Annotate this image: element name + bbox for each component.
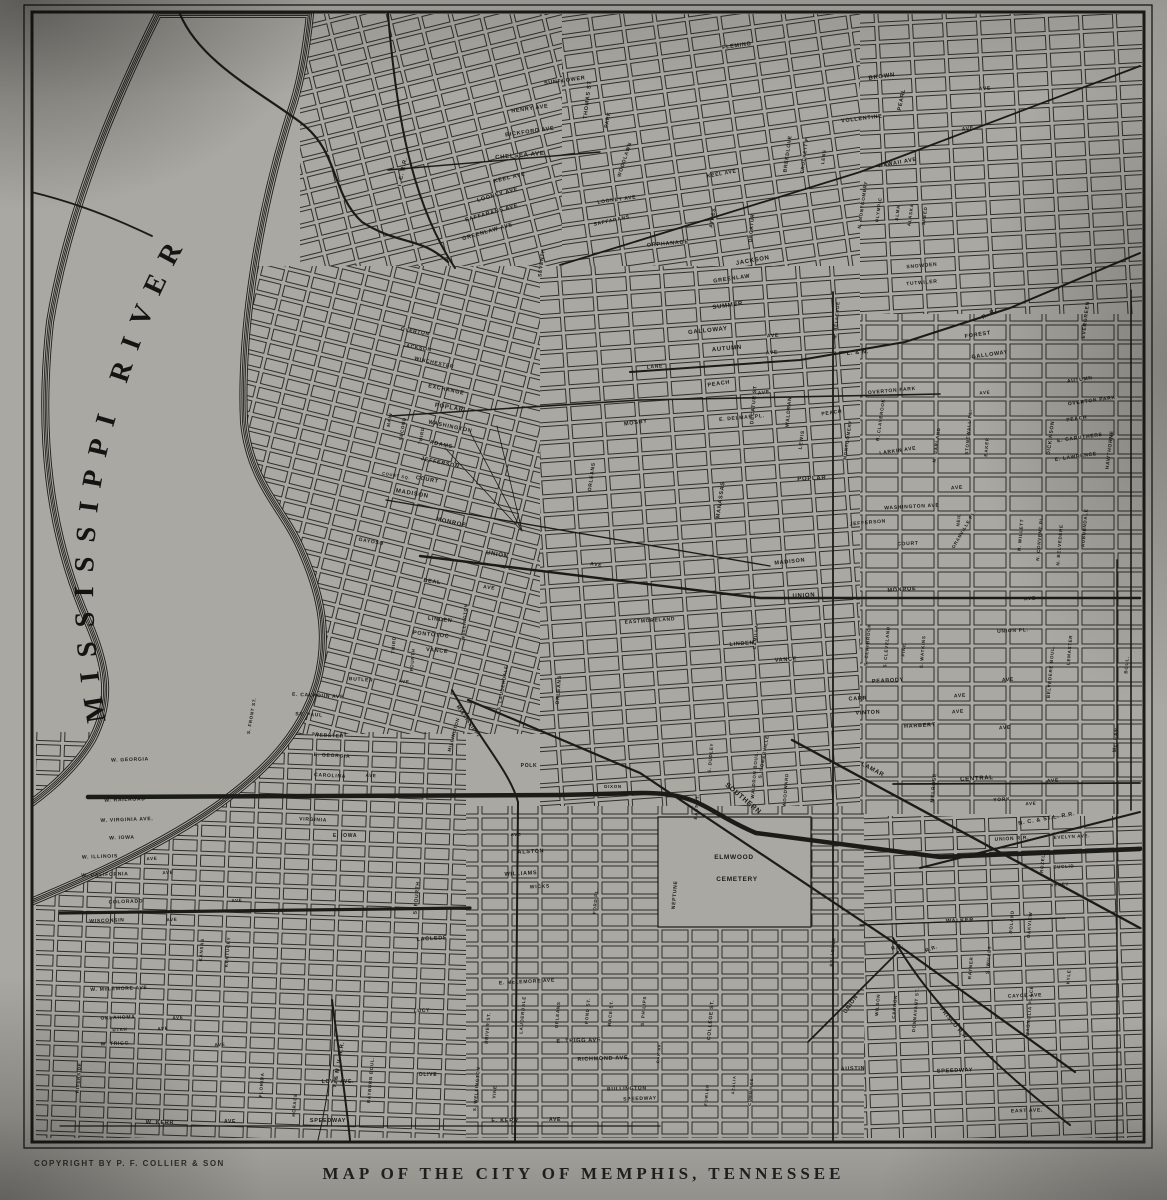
svg-text:LUCY: LUCY <box>414 1008 431 1015</box>
svg-text:AVE: AVE <box>1025 801 1036 807</box>
svg-text:AVE: AVE <box>952 709 964 716</box>
svg-text:AVE: AVE <box>766 349 778 356</box>
svg-text:AVE: AVE <box>166 917 177 922</box>
svg-text:AVE: AVE <box>1024 596 1036 603</box>
svg-text:VESEY: VESEY <box>1051 882 1070 888</box>
svg-text:AVE: AVE <box>398 679 409 685</box>
svg-text:AUSTIN: AUSTIN <box>841 1066 866 1073</box>
svg-text:COLORADO: COLORADO <box>108 898 143 905</box>
svg-text:UTAH: UTAH <box>112 1027 127 1033</box>
svg-text:W. ILLINOIS: W. ILLINOIS <box>82 853 118 860</box>
svg-text:AVE: AVE <box>1047 778 1059 785</box>
svg-text:AVE: AVE <box>157 1026 168 1031</box>
svg-text:SPEEDWAY: SPEEDWAY <box>623 1095 657 1102</box>
svg-text:CAYCE AVE: CAYCE AVE <box>1008 992 1043 999</box>
map-title: MAP OF THE CITY OF MEMPHIS, TENNESSEE <box>0 1164 1167 1184</box>
svg-text:AVE: AVE <box>231 898 242 903</box>
svg-text:WISCONSIN: WISCONSIN <box>89 917 124 924</box>
svg-text:W. IOWA: W. IOWA <box>109 835 135 842</box>
svg-text:AVE: AVE <box>954 693 966 700</box>
svg-text:AVE: AVE <box>1002 677 1014 684</box>
svg-text:UNION: UNION <box>792 592 815 599</box>
svg-text:AVE: AVE <box>365 773 376 779</box>
svg-text:AVE: AVE <box>951 485 963 492</box>
svg-text:SPEEDWAY: SPEEDWAY <box>310 1118 346 1124</box>
svg-text:CEMETERY: CEMETERY <box>716 876 757 883</box>
svg-text:CARR: CARR <box>848 696 867 703</box>
svg-text:AVE: AVE <box>510 832 521 837</box>
svg-text:WICKS: WICKS <box>530 883 550 890</box>
svg-text:COURT: COURT <box>897 540 919 547</box>
svg-text:OLIVE: OLIVE <box>419 1072 438 1078</box>
svg-text:AVE: AVE <box>162 870 173 875</box>
svg-text:AVE: AVE <box>172 1015 183 1020</box>
svg-text:POLK: POLK <box>521 763 538 769</box>
svg-text:W. KERR: W. KERR <box>146 1120 174 1126</box>
svg-text:AVE: AVE <box>146 856 157 861</box>
svg-text:SPEEDWAY: SPEEDWAY <box>937 1067 973 1074</box>
svg-text:DIXON: DIXON <box>604 784 622 789</box>
svg-text:AVE: AVE <box>979 85 991 92</box>
svg-text:YORK: YORK <box>993 797 1011 804</box>
svg-text:E. KERR: E. KERR <box>491 1118 518 1124</box>
svg-text:OKLAHOMA: OKLAHOMA <box>100 1014 135 1021</box>
svg-text:AVE: AVE <box>214 1042 225 1047</box>
svg-text:AVE: AVE <box>224 1119 236 1125</box>
svg-text:W. TRIGG: W. TRIGG <box>101 1041 130 1048</box>
svg-text:AVE: AVE <box>767 332 779 339</box>
svg-text:ELMWOOD: ELMWOOD <box>714 854 754 861</box>
svg-text:E. IOWA: E. IOWA <box>333 833 357 839</box>
memphis-city-map: SUNFLOWERFLEMINGHENRY AVEBICKFORD AVECHE… <box>0 0 1167 1200</box>
map-photo: SUNFLOWERFLEMINGHENRY AVEBICKFORD AVECHE… <box>0 0 1167 1200</box>
svg-text:AVE: AVE <box>999 725 1011 732</box>
svg-text:AVE: AVE <box>549 1117 561 1123</box>
svg-text:AVE: AVE <box>979 390 990 396</box>
svg-text:EAST AVE.: EAST AVE. <box>1011 1107 1043 1114</box>
